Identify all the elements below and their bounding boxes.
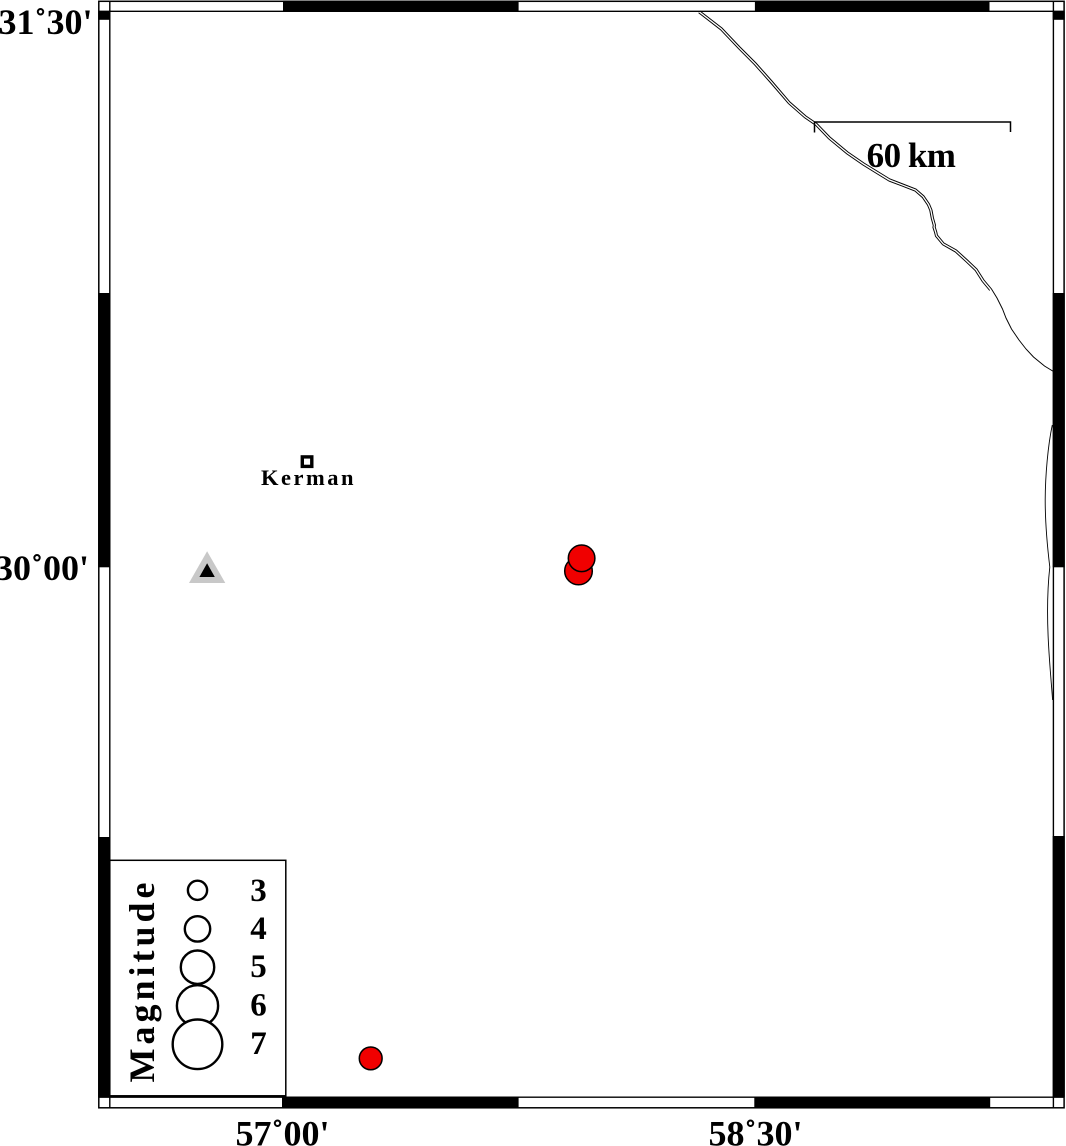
svg-text:31˚30': 31˚30': [0, 2, 93, 42]
svg-text:Magnitude: Magnitude: [122, 878, 162, 1082]
svg-text:3: 3: [250, 873, 267, 909]
svg-text:57˚00': 57˚00': [236, 1114, 330, 1146]
svg-text:6: 6: [250, 987, 267, 1023]
svg-text:60 km: 60 km: [867, 136, 956, 175]
svg-text:4: 4: [250, 911, 267, 947]
svg-text:58˚30': 58˚30': [709, 1114, 803, 1146]
svg-text:30˚00': 30˚00': [0, 548, 89, 588]
svg-text:5: 5: [250, 949, 267, 985]
svg-text:Kerman: Kerman: [261, 465, 356, 490]
svg-text:7: 7: [250, 1026, 267, 1062]
